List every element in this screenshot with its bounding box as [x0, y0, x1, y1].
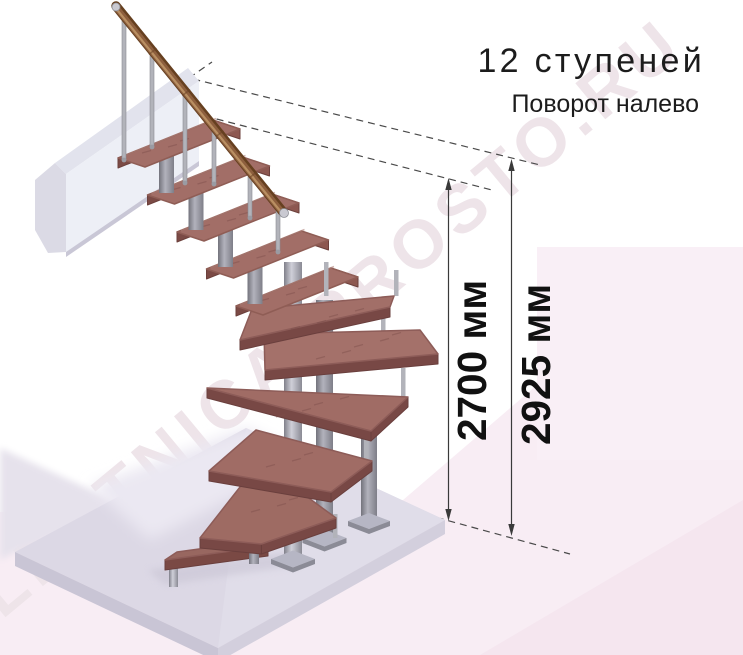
svg-text:12 ступеней: 12 ступеней: [477, 42, 705, 80]
svg-text:2700 мм: 2700 мм: [449, 280, 495, 441]
svg-text:2925 мм: 2925 мм: [513, 284, 559, 445]
svg-text:Поворот налево: Поворот налево: [511, 90, 699, 118]
